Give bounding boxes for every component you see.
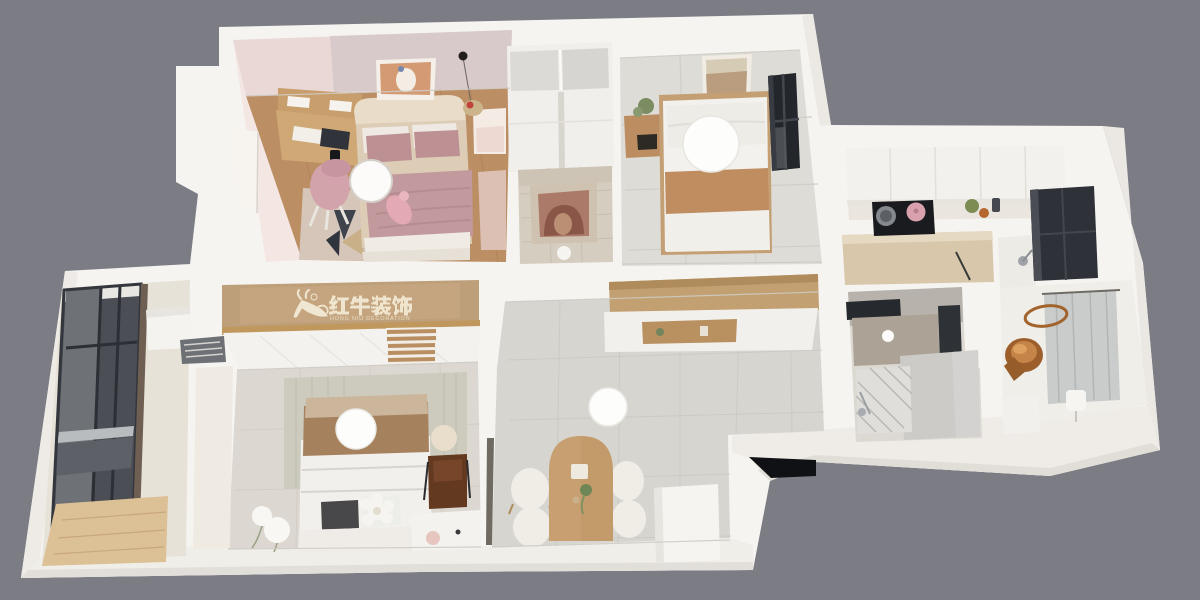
- svg-text:HONG NIU DECORATION: HONG NIU DECORATION: [330, 316, 411, 322]
